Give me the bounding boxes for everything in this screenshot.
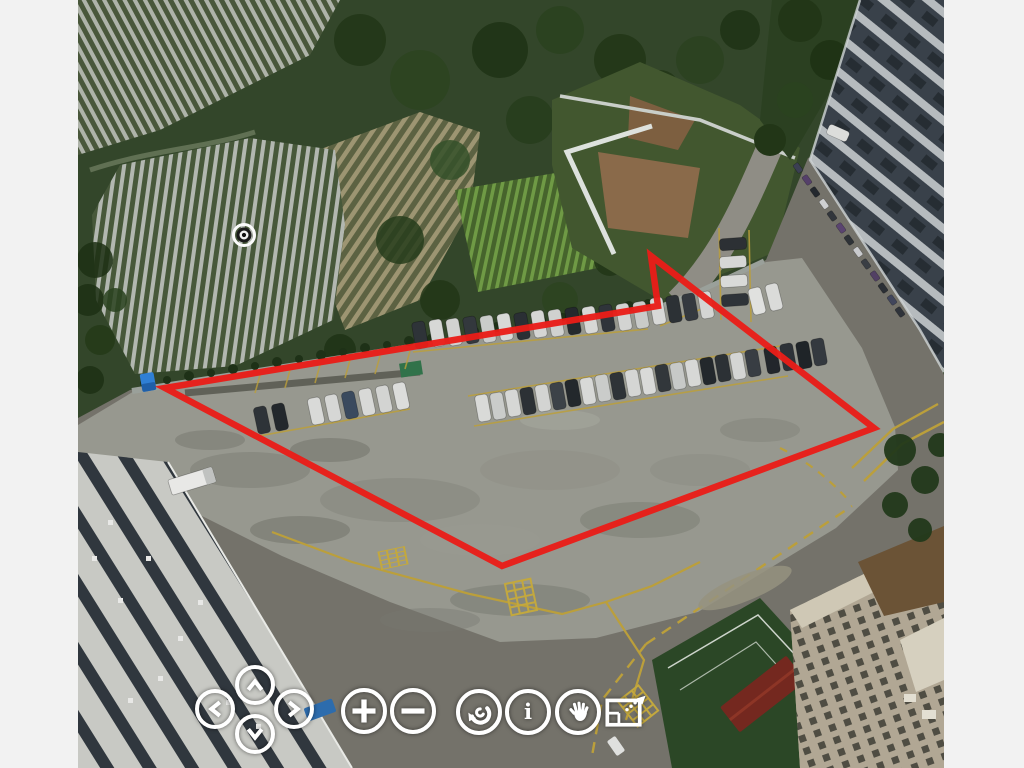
plus-icon bbox=[351, 698, 377, 724]
pan-right-button[interactable] bbox=[274, 689, 314, 729]
screen-arrow-icon bbox=[605, 694, 649, 730]
pan-mode-button[interactable] bbox=[555, 689, 601, 735]
circular-arrow-icon bbox=[466, 699, 492, 725]
zoom-in-button[interactable] bbox=[341, 688, 387, 734]
fullscreen-button[interactable] bbox=[605, 694, 649, 730]
chevron-left-icon bbox=[205, 699, 225, 719]
chevron-right-icon bbox=[284, 699, 304, 719]
pan-down-button[interactable] bbox=[235, 714, 275, 754]
chevron-down-icon bbox=[245, 724, 265, 744]
pan-left-button[interactable] bbox=[195, 689, 235, 729]
minus-icon bbox=[400, 698, 426, 724]
pan-up-button[interactable] bbox=[235, 665, 275, 705]
zoom-out-button[interactable] bbox=[390, 688, 436, 734]
svg-text:i: i bbox=[524, 700, 532, 725]
panorama-photo[interactable] bbox=[0, 0, 1024, 768]
info-button[interactable]: i bbox=[505, 689, 551, 735]
target-hotspot[interactable] bbox=[234, 225, 255, 246]
info-icon: i bbox=[515, 699, 541, 725]
viewer-stage: i bbox=[0, 0, 1024, 768]
hand-icon bbox=[565, 699, 591, 725]
chevron-up-icon bbox=[245, 675, 265, 695]
autorotate-button[interactable] bbox=[456, 689, 502, 735]
